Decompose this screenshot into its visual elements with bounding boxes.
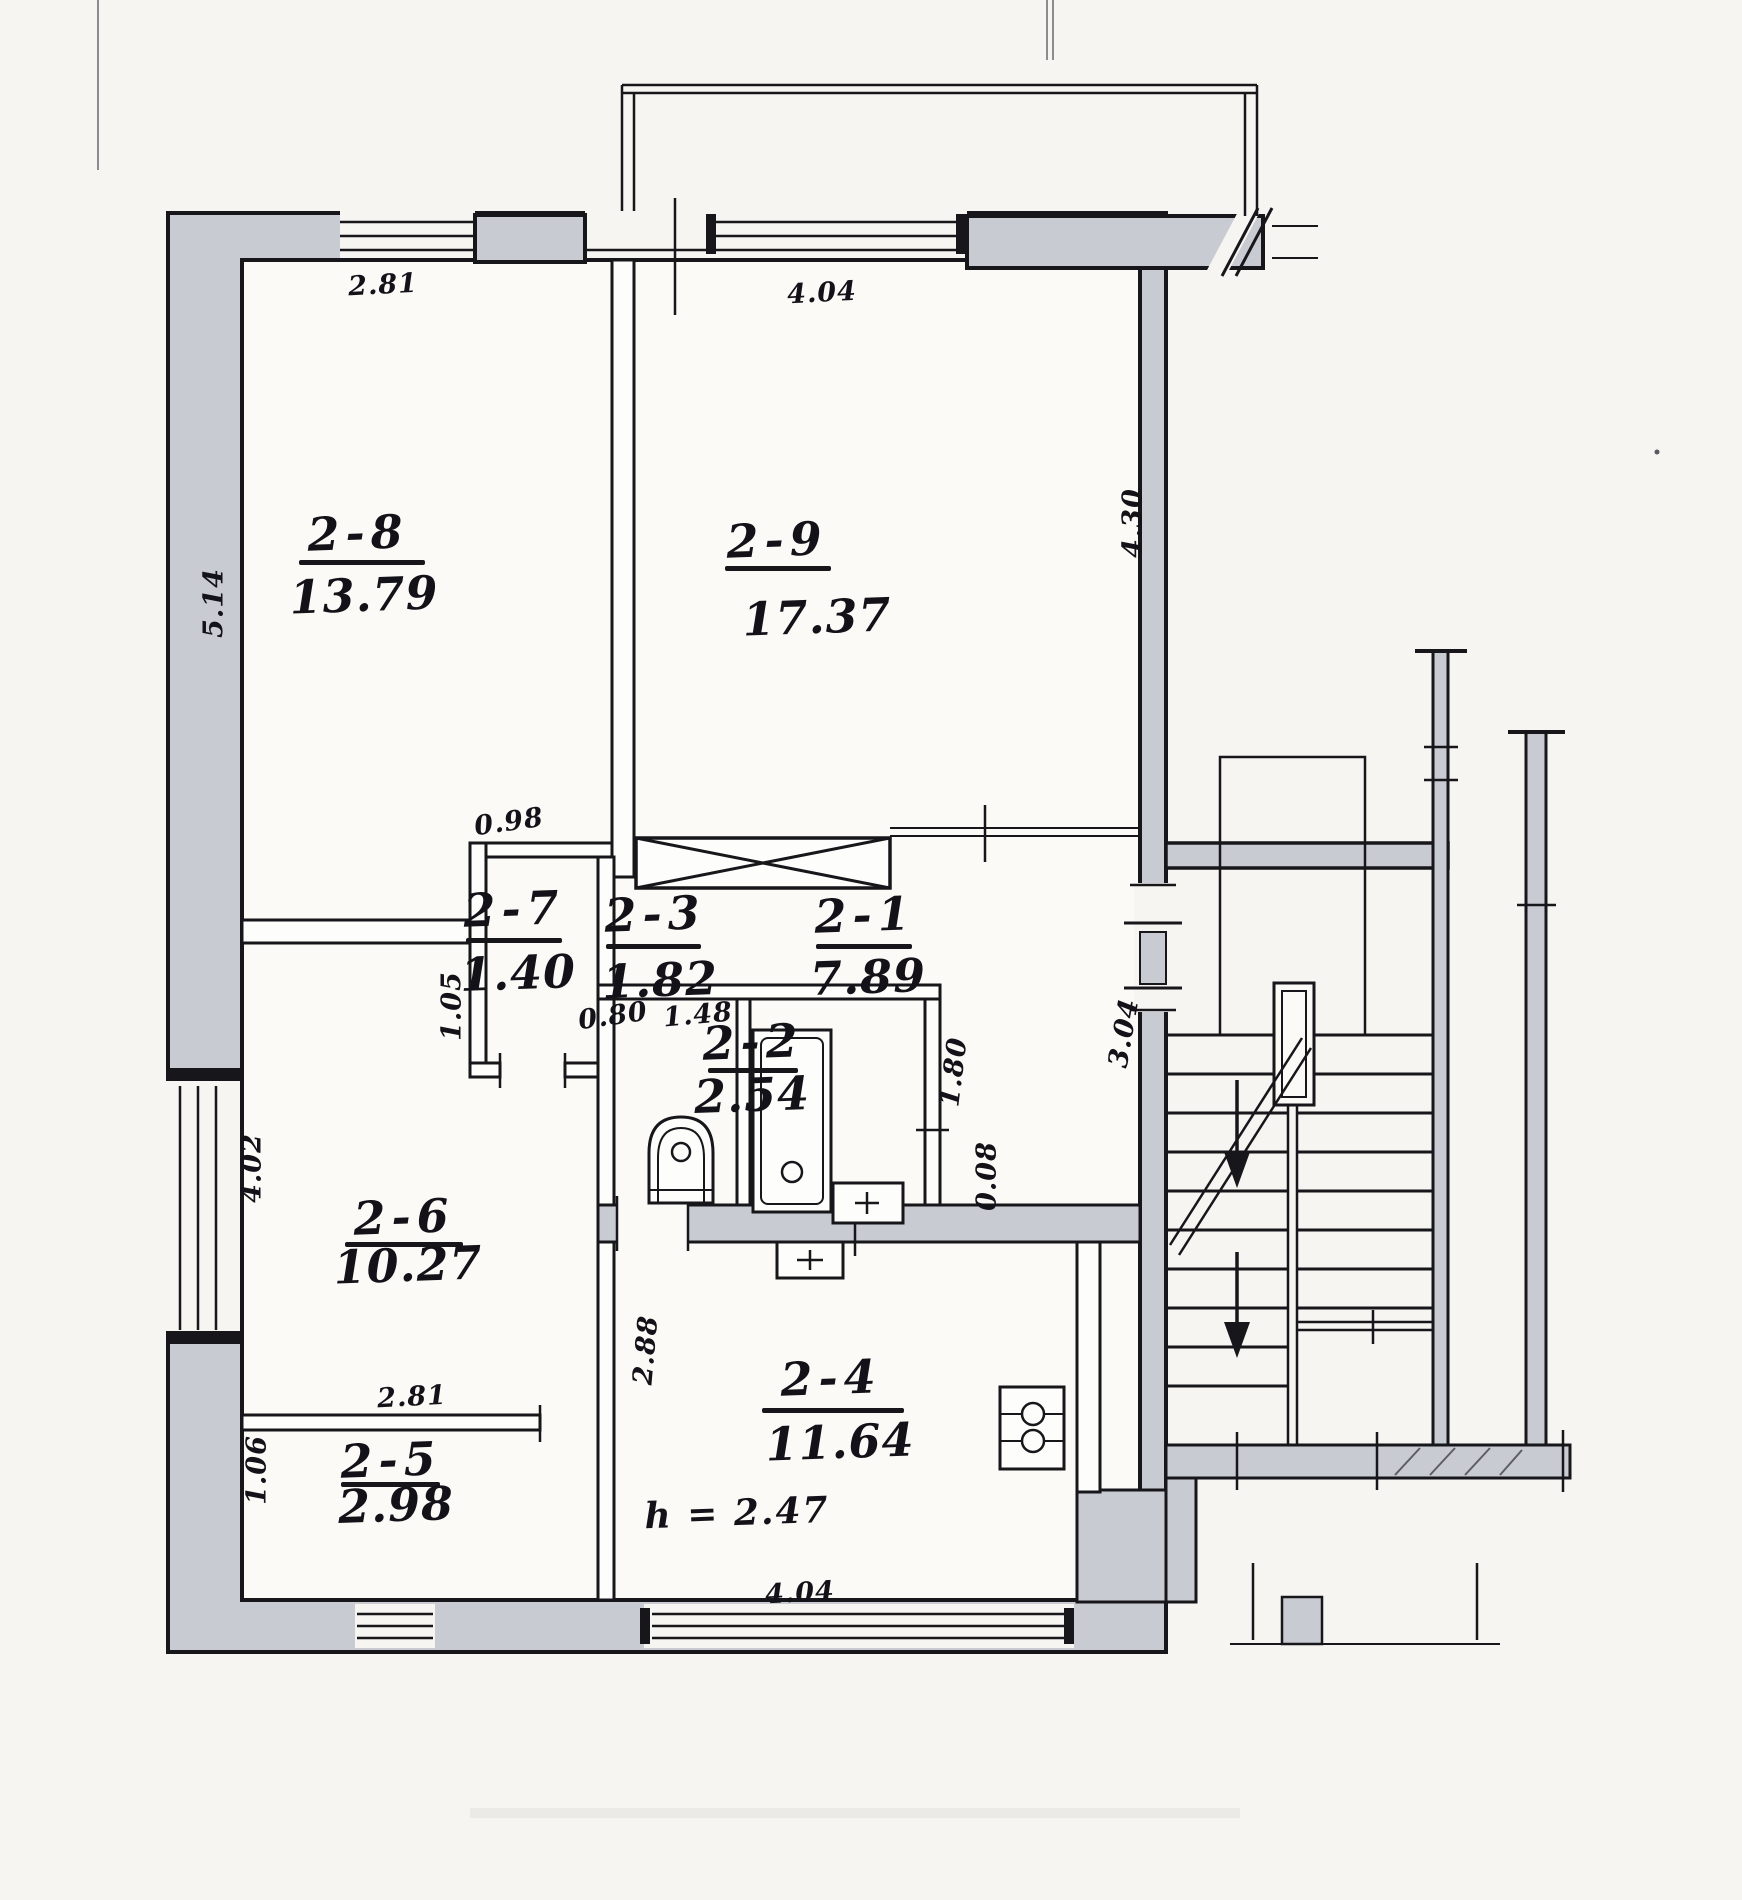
scan-dot [1655, 450, 1660, 455]
stove-fixture [1000, 1387, 1064, 1469]
kitchen-sink-fixture [777, 1242, 843, 1278]
washbasin-fixture [833, 1183, 903, 1223]
toilet-fixture [649, 1117, 713, 1203]
bathtub-fixture [753, 1030, 831, 1212]
entrance-porch [1230, 1563, 1500, 1644]
wall-pier [475, 215, 585, 262]
balcony [622, 85, 1257, 216]
wardrobe-crossed-box [636, 838, 890, 888]
floor-plan-page: 2-813.792-917.372-71.402-31.822-17.892-2… [0, 0, 1742, 1900]
floor-plan-drawing [0, 0, 1742, 1900]
scan-smear [470, 1808, 1240, 1818]
